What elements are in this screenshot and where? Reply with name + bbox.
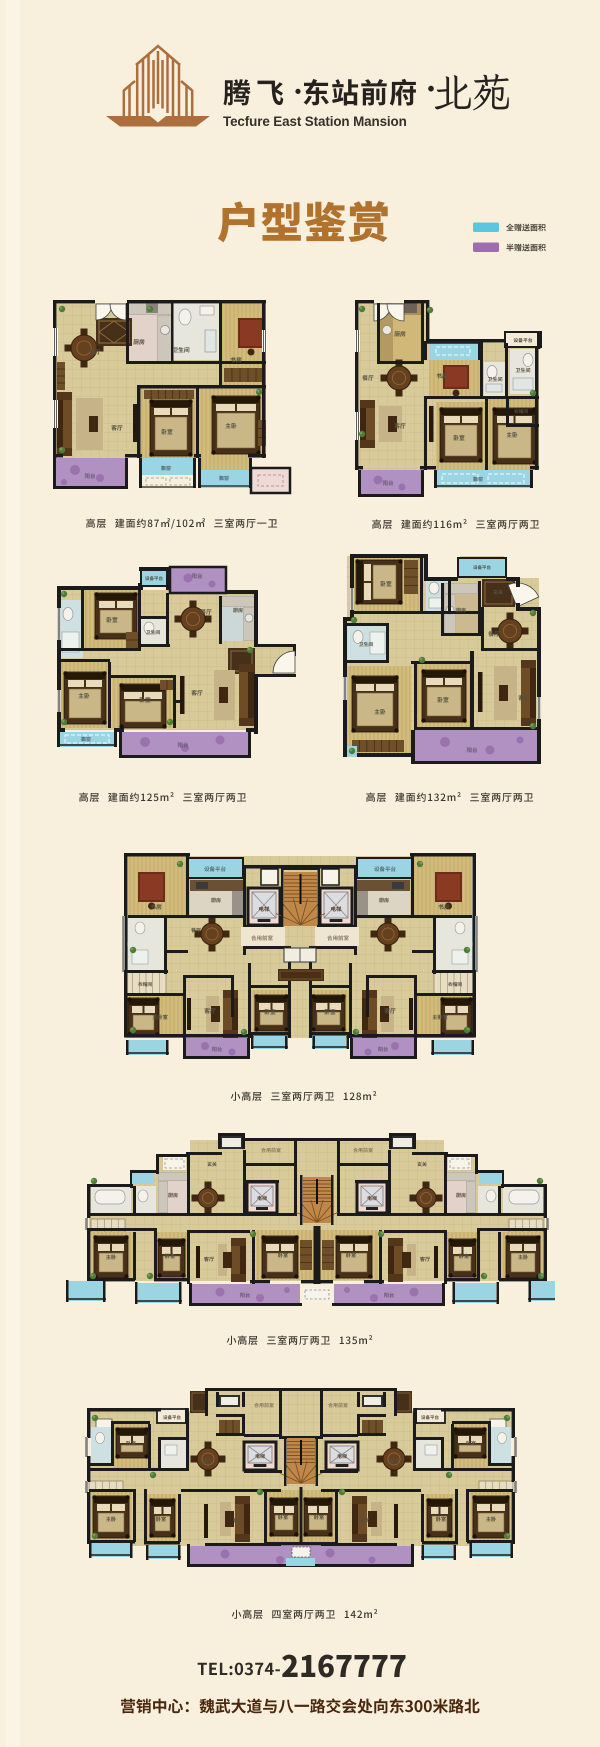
svg-text:Tecfure East Station Mansion: Tecfure East Station Mansion bbox=[223, 114, 407, 129]
